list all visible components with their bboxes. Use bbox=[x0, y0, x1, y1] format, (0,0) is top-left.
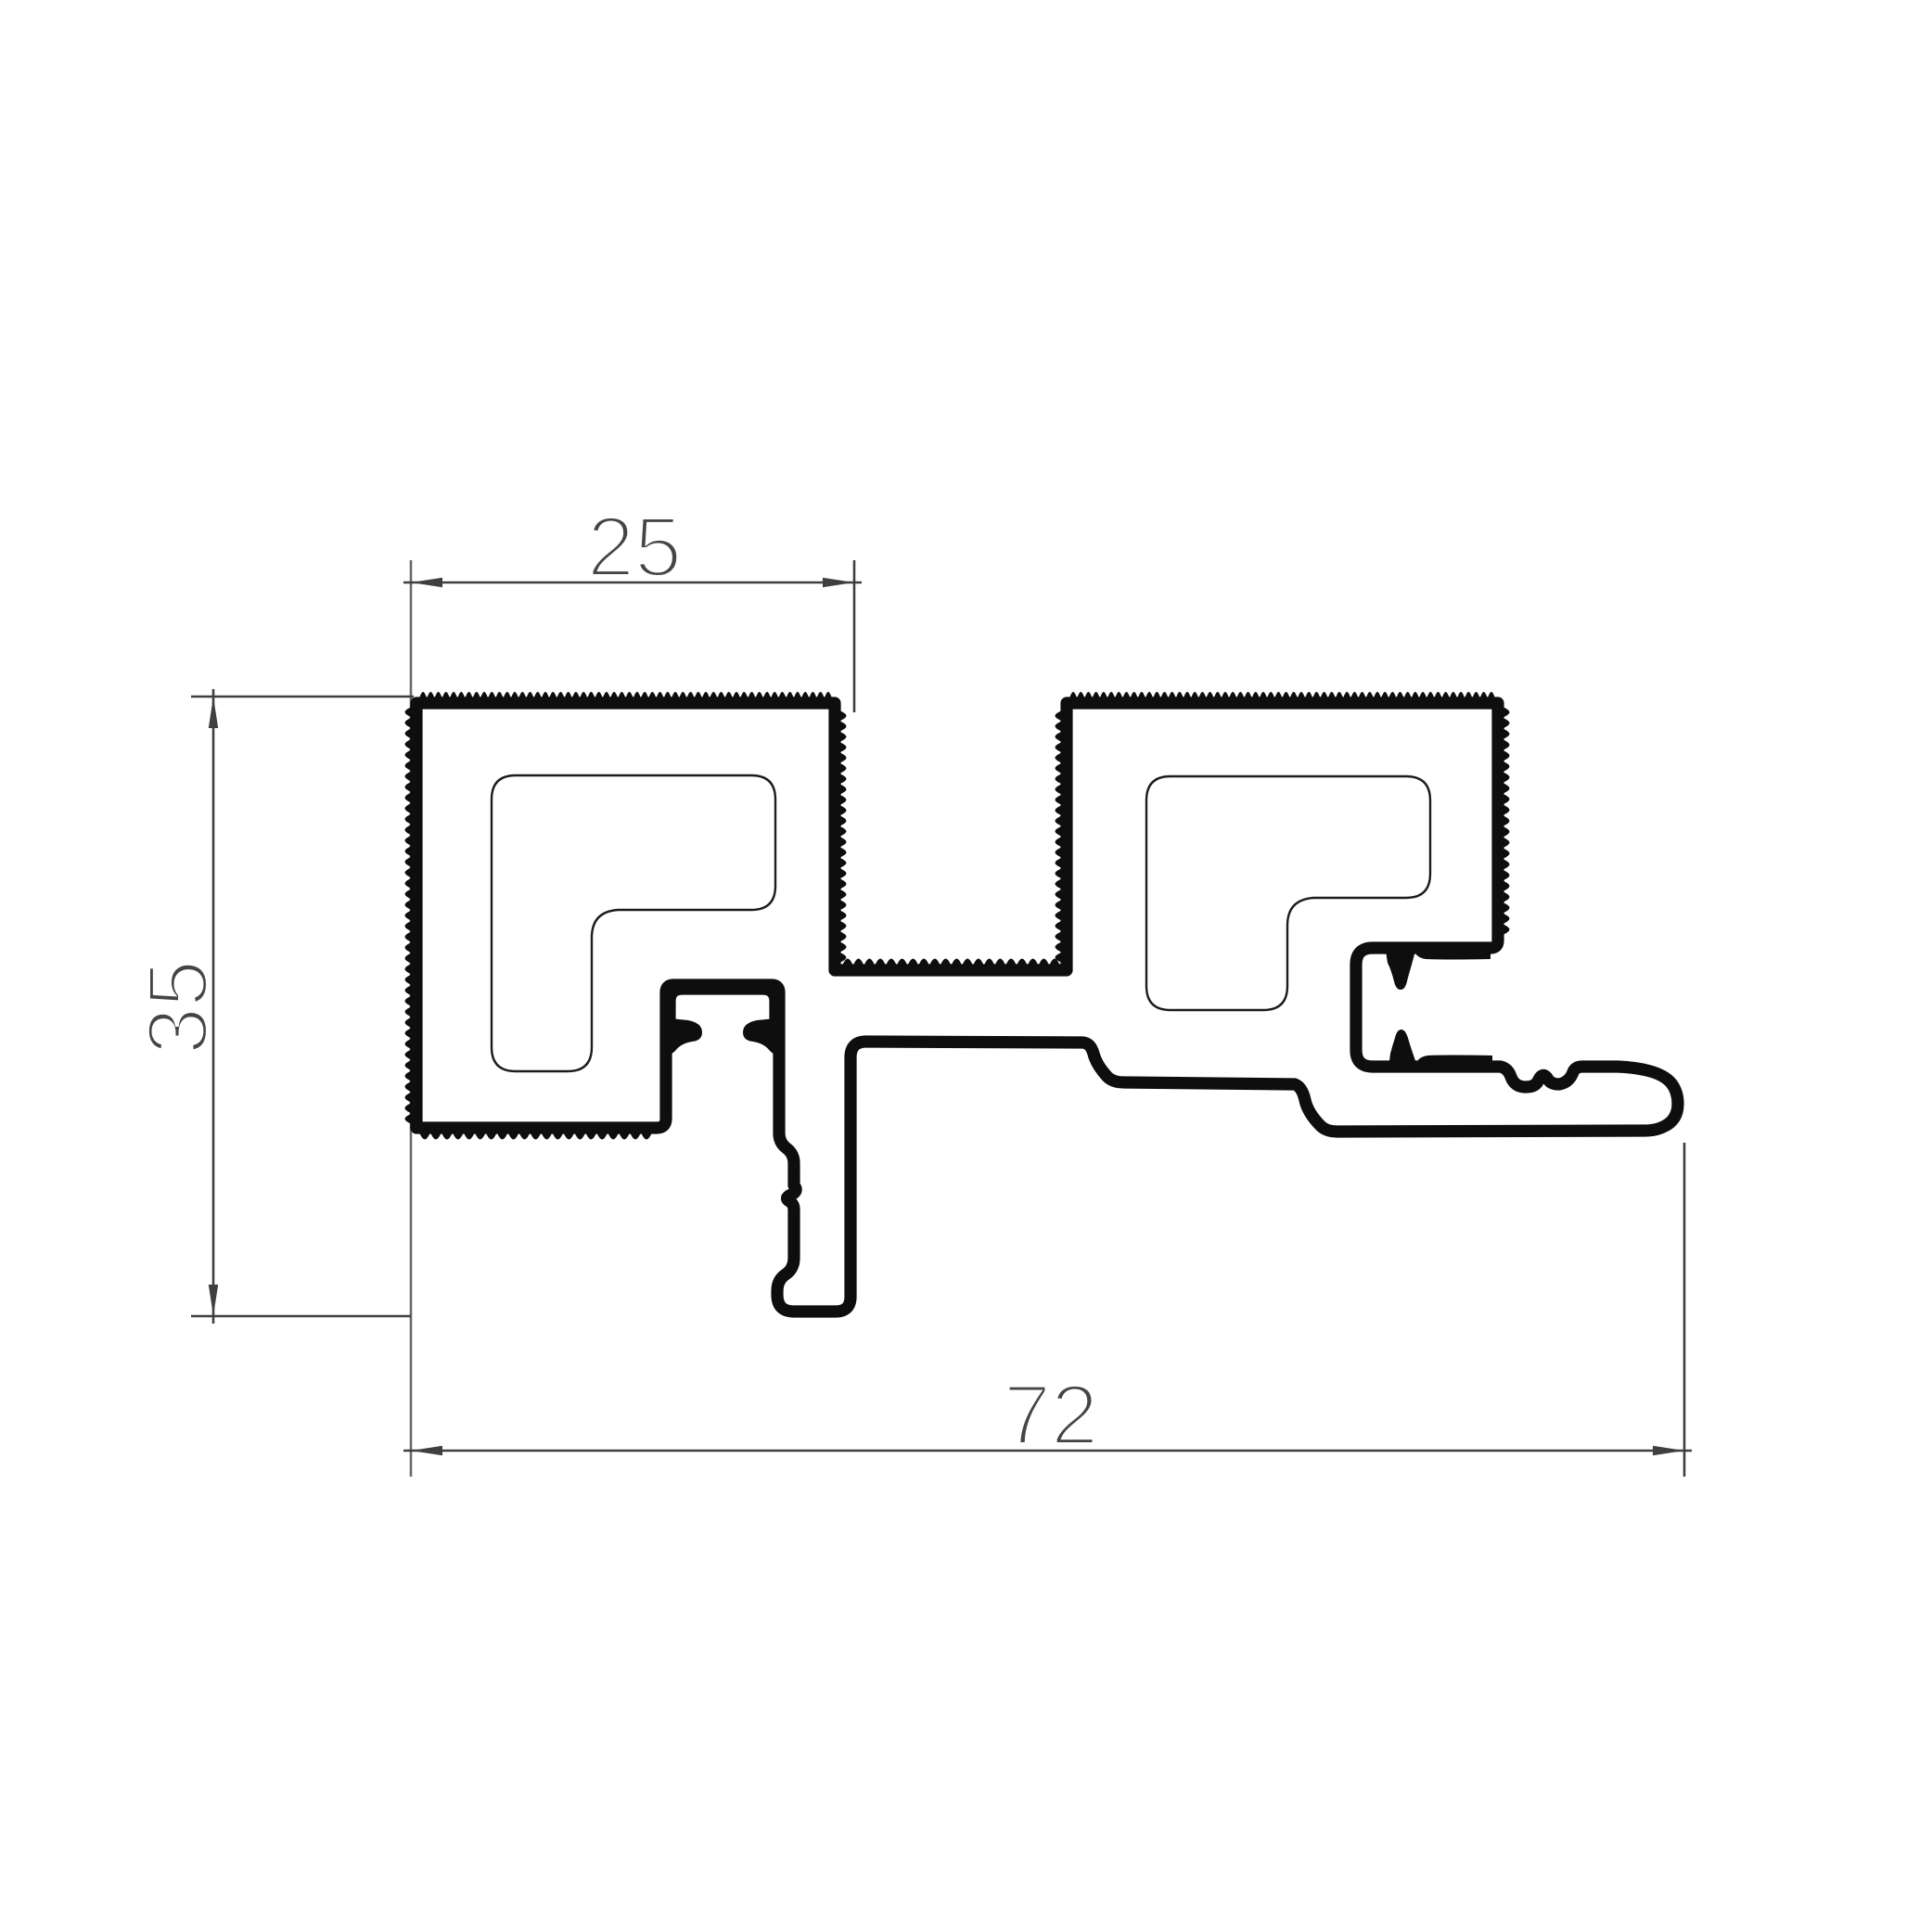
svg-text:25: 25 bbox=[587, 500, 682, 595]
svg-text:35: 35 bbox=[131, 960, 225, 1055]
svg-text:72: 72 bbox=[1004, 1368, 1098, 1463]
